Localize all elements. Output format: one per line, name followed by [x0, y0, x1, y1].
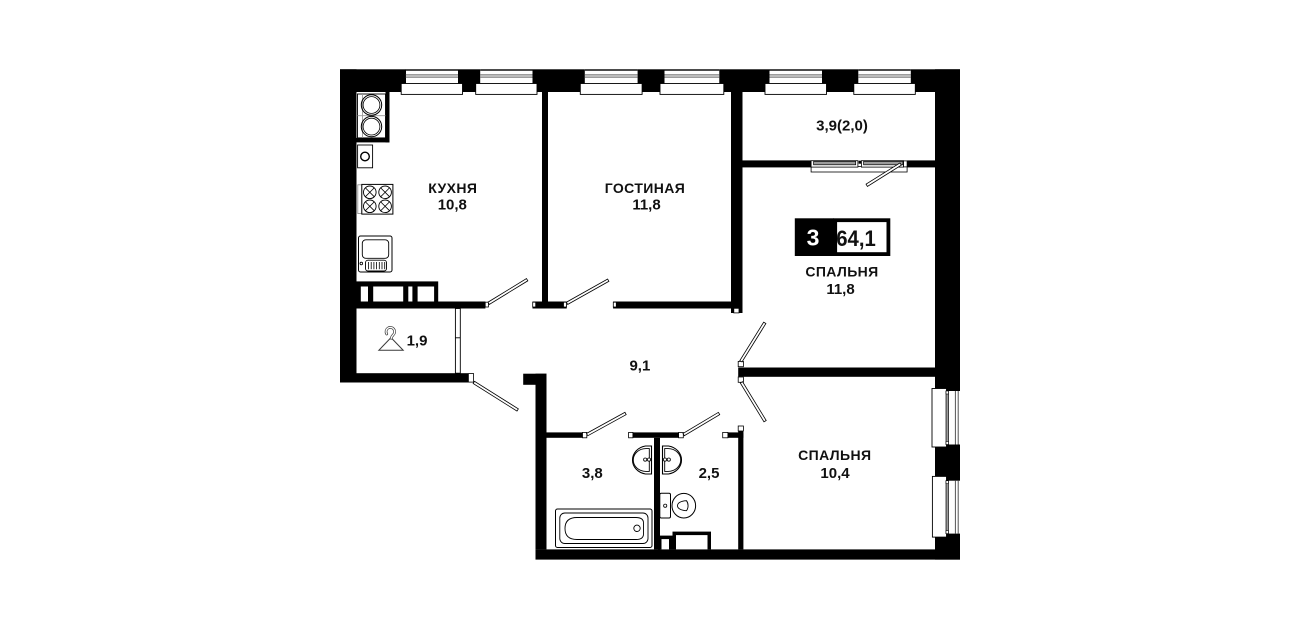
svg-text:3,9(2,0): 3,9(2,0)	[816, 117, 868, 134]
svg-text:СПАЛЬНЯ: СПАЛЬНЯ	[798, 447, 871, 463]
svg-text:СПАЛЬНЯ: СПАЛЬНЯ	[805, 264, 878, 280]
svg-text:10,4: 10,4	[820, 465, 850, 482]
svg-text:3: 3	[807, 225, 820, 251]
svg-text:64,1: 64,1	[836, 226, 876, 251]
svg-text:ГОСТИНАЯ: ГОСТИНАЯ	[605, 180, 686, 196]
svg-text:9,1: 9,1	[629, 357, 650, 374]
svg-text:КУХНЯ: КУХНЯ	[428, 180, 477, 196]
svg-text:11,8: 11,8	[632, 197, 660, 214]
svg-text:2,5: 2,5	[699, 465, 720, 482]
svg-text:11,8: 11,8	[826, 281, 854, 298]
svg-text:3,8: 3,8	[582, 465, 603, 482]
svg-text:1,9: 1,9	[407, 333, 428, 350]
svg-text:10,8: 10,8	[438, 197, 467, 214]
